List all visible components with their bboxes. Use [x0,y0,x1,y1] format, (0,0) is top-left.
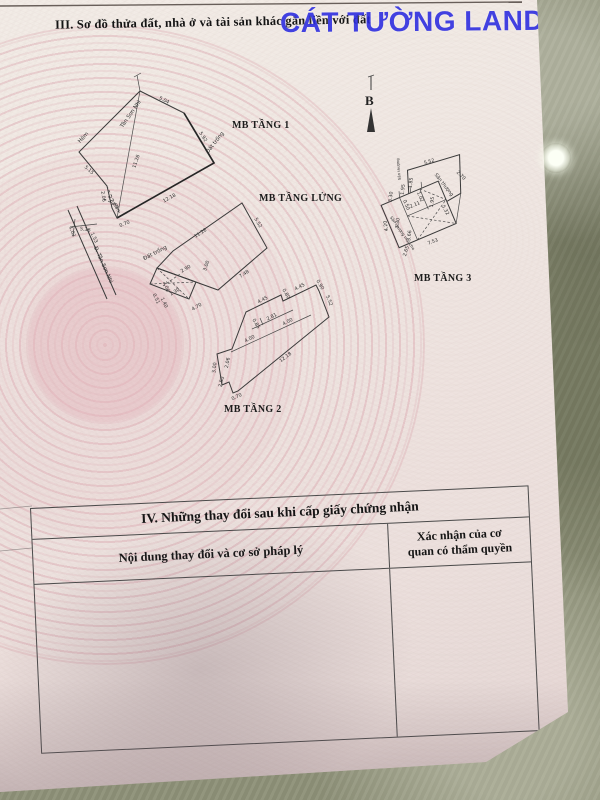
lung-dim: 2.90 [180,264,192,275]
t2-title: MB TẦNG 2 [224,402,282,415]
t1-dim: 0.70 [119,219,131,229]
certificate-paper: III. Sơ đồ thửa đất, nhà ở và tài sản kh… [0,0,600,800]
t2-dim: 2.81 [266,312,278,322]
t3-dim: 3.30 [388,191,395,202]
t1-vacant-label-1: Đất trống [204,130,225,155]
t3-dim: 1.95 [400,184,407,195]
t2-dim: 4.00 [244,334,256,344]
t2-dim: 0.70 [231,392,243,402]
t3-dim: 1.95 [429,196,436,207]
t1-dim: 11.26 [132,154,142,169]
lung-dim: 5.52 [253,217,264,229]
t2-dim: 2.50 [218,376,227,388]
t3-dim: 7.53 [427,237,439,246]
light-reflection-dot [541,143,571,173]
t1-dim: 2.67 [106,195,115,207]
t2-dim: 5.52 [324,295,334,307]
lung-dim: 1.30 [169,287,181,298]
t3-dim: 4.20 [383,220,390,231]
t1-outline [79,91,214,218]
t1-dim: 1.03 [67,226,76,238]
photo-of-land-certificate: III. Sơ đồ thửa đất, nhà ở và tài sản kh… [0,0,600,800]
plan-floor3: 3.30 1.95 1.85 0.50 2.11 1.02 1.95 5.32 … [359,134,488,262]
bottom-shadow [0,680,600,800]
t2-dim: 12.18 [278,351,293,364]
t2-dim: 2.06 [224,357,232,369]
t3-title: MB TẦNG 3 [414,271,472,284]
plan-floor1: Tân Sơn Nhì Hẻm Đất trống Đất trống Sân … [67,73,289,299]
lung-dim: 11.26 [193,227,208,240]
t1-dim: 12.18 [162,192,177,204]
cat-tuong-land-watermark: CÁT TƯỜNG LAND [280,5,544,39]
t2-dim: 0.85 [251,318,262,330]
t1-dim: 1.53 [89,232,99,244]
north-arrow: B [365,75,375,132]
lung-dim: 1.40 [159,297,169,309]
t1-title: MB TẦNG 1 [232,118,290,131]
lung-dim: 3.00 [202,260,211,272]
t2-outline [217,285,329,393]
t1-dim: 5.36 [80,226,91,233]
t1-top-tick [134,73,141,91]
lung-dim: 2.06 [161,281,170,293]
lung-dim: 4.70 [191,302,203,313]
t1-street-top-label: Tân Sơn Nhì [118,99,143,130]
t3-terrace-small-label: Sân thượng [395,158,402,181]
t1-street-left-label: Đ. Tân Sơn Nhì [92,245,115,284]
north-arrowhead [367,108,375,132]
t1-dim: 5.04 [158,95,170,105]
t2-dim: 3.00 [211,362,218,373]
t3-dim: 5.52 [423,158,435,167]
plan-floor2: 4.45 0.80 4.45 0.90 5.52 2.81 0.85 4.00 … [211,279,333,415]
t3-dim: 1.85 [408,177,415,188]
t1-vacant-label-2: Đất trống [142,244,168,262]
lung-title: MB TẦNG LỬNG [259,191,342,204]
north-label: B [365,93,374,108]
t1-dim: 2.06 [99,191,106,202]
t1-dim: 5.15 [83,164,95,176]
plan-mezzanine: 11.26 5.52 7.48 2.90 3.00 1.30 0.51 1.40… [150,191,342,312]
t3-dim: 2.70 [455,170,467,182]
lung-outline [157,203,267,290]
